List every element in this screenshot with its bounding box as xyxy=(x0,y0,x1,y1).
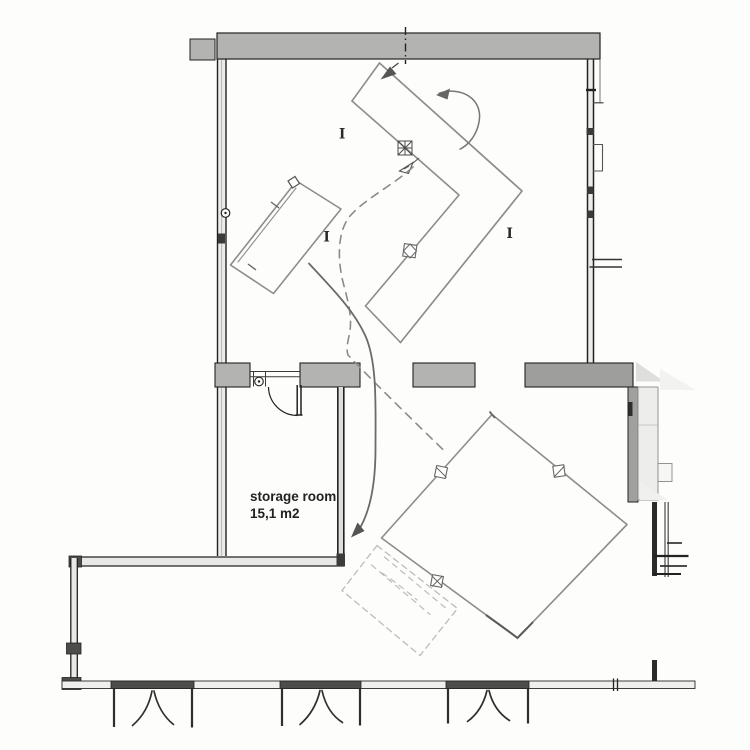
wall-joint-mark xyxy=(587,128,595,135)
mid-wall-block-left xyxy=(215,363,250,387)
column-marker: I xyxy=(324,230,330,246)
wall-joint-mark xyxy=(629,402,633,416)
column-marker: I xyxy=(507,226,513,242)
door-swing-arc xyxy=(269,387,298,416)
storage-room-area: 15,1 m2 xyxy=(250,506,300,521)
mid-wall-block-center xyxy=(300,363,360,387)
window-bracket xyxy=(593,145,603,172)
top-wall-left-stub xyxy=(190,39,215,60)
folding-door-symbols xyxy=(133,691,510,726)
folding-door-curve xyxy=(468,691,488,722)
sketch-square-large xyxy=(382,412,628,639)
door-leaf xyxy=(296,385,303,415)
rotation-arc xyxy=(439,91,480,149)
wall-joint-mark xyxy=(587,187,594,195)
edge-square-symbol xyxy=(553,465,565,477)
folding-door-curve xyxy=(300,691,320,725)
storage-door xyxy=(250,371,303,416)
column-markers: I I I xyxy=(324,127,513,246)
floor-plan-page: storage room 15,1 m2 xyxy=(0,0,750,750)
wall-outlet-dot xyxy=(224,212,226,214)
wall-joint-mark xyxy=(587,211,594,219)
wall-joint-block xyxy=(67,643,82,654)
sketch-ghost-rectangle xyxy=(342,546,458,656)
left-wall xyxy=(217,59,227,556)
wall-shadow-wedge xyxy=(636,362,664,382)
square-outline xyxy=(382,415,628,639)
dashed-route-line xyxy=(339,167,446,453)
floor-plan-drawing: storage room 15,1 m2 xyxy=(0,0,750,750)
sketch-counter-v xyxy=(352,63,522,343)
folding-door-curve xyxy=(154,691,174,725)
sketch-arrow-tail xyxy=(392,63,399,68)
facade-post-stub xyxy=(652,660,657,681)
facade-door-head xyxy=(446,681,529,689)
rotation-arrowhead xyxy=(436,89,450,100)
right-side-assembly xyxy=(628,362,696,577)
door-threshold xyxy=(250,372,300,377)
storage-room-label: storage room xyxy=(250,489,336,504)
railing-post xyxy=(652,502,657,576)
column-marker: I xyxy=(339,127,345,143)
wall-corner-joint xyxy=(337,554,346,567)
corner-diamond-symbol xyxy=(288,177,300,189)
counter-end-edges xyxy=(352,63,401,343)
ghost-hatch xyxy=(382,573,417,600)
edge-square-symbol xyxy=(431,575,444,588)
stair-railing xyxy=(652,502,689,577)
counter-inner-edge xyxy=(352,101,459,306)
mid-wall-block-right xyxy=(525,363,633,387)
table-double-line xyxy=(238,188,296,262)
door-closer-dot xyxy=(258,380,260,382)
left-perimeter-wall xyxy=(62,558,81,690)
storage-bottom-wall-core xyxy=(73,557,344,566)
folding-door-curve xyxy=(133,691,153,726)
square-corner-emphasis xyxy=(486,615,533,638)
counter-outer-edge xyxy=(380,63,523,343)
diamond-square-symbol xyxy=(403,244,417,258)
folding-door-curve xyxy=(489,691,510,721)
ghost-outline xyxy=(342,546,458,656)
top-wall-band xyxy=(217,33,600,59)
edge-square-symbol xyxy=(434,465,447,478)
bottom-facade xyxy=(62,660,695,728)
facade-door-head xyxy=(111,681,194,689)
wall-joint-mark xyxy=(218,234,225,244)
wall-step xyxy=(658,464,672,482)
facade-door-head xyxy=(280,681,361,689)
hatch-square-symbol xyxy=(398,141,412,155)
facade-jamb-ticks xyxy=(114,689,528,728)
mid-wall-pillar xyxy=(413,363,475,387)
left-perimeter-core xyxy=(71,558,78,680)
storage-room: storage room 15,1 m2 xyxy=(69,387,345,567)
sketch-arrow xyxy=(381,67,397,80)
wall-shadow-wedge xyxy=(660,369,696,390)
folding-door-curve xyxy=(322,691,343,723)
structural-walls xyxy=(190,27,633,556)
